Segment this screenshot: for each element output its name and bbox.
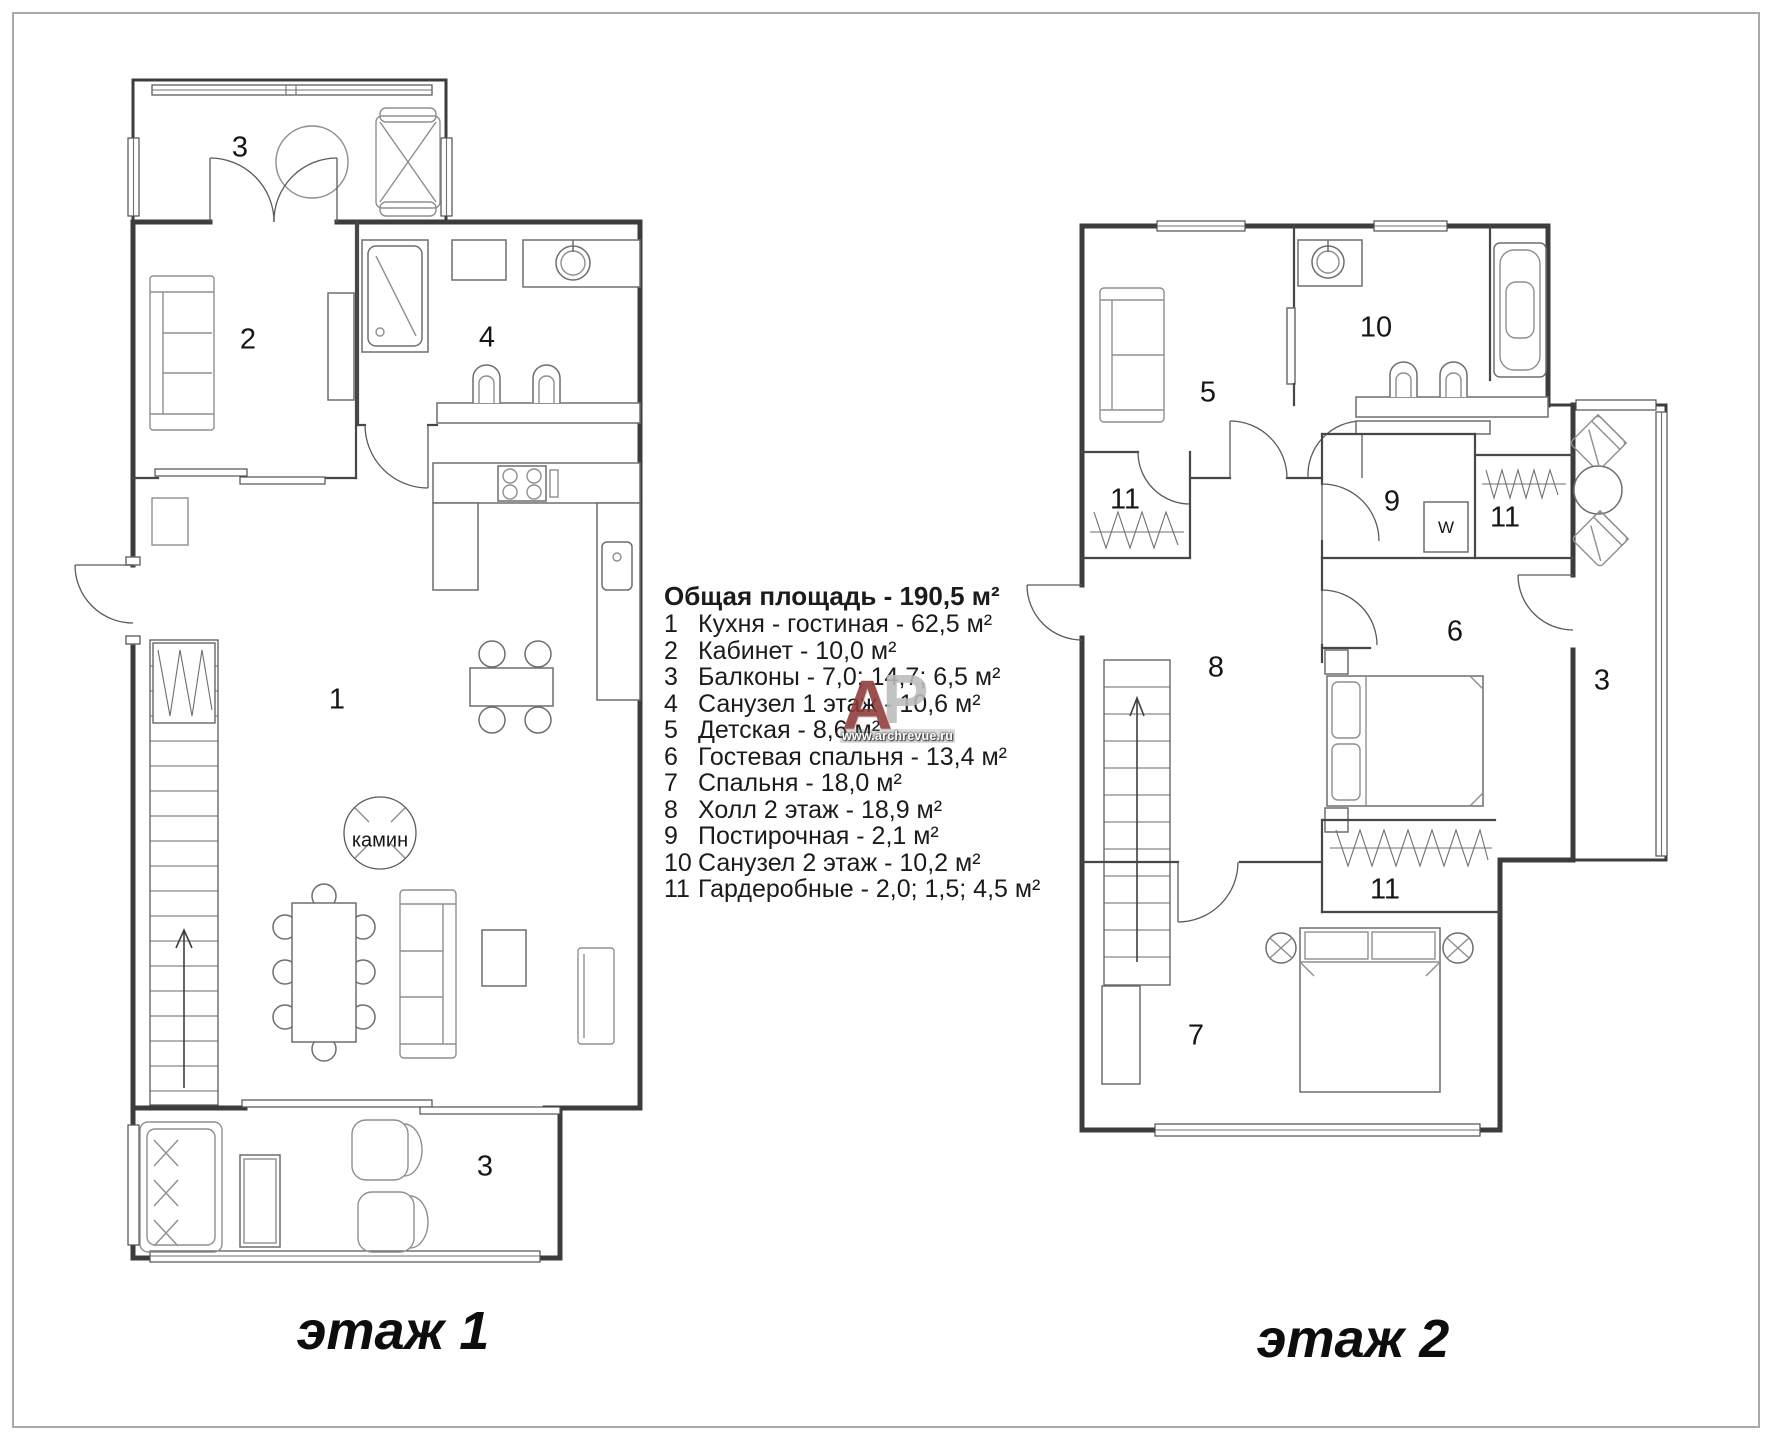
washbasin: [1298, 240, 1362, 286]
balcony-round-table: [1574, 466, 1622, 514]
stairs-floor1: [150, 640, 218, 1105]
living-sofas: [400, 890, 614, 1058]
bathroom1: [358, 222, 640, 488]
legend-item: 11Гардеробные - 2,0; 1,5; 4,5 м²: [664, 876, 1024, 903]
balcony-door: [1518, 575, 1573, 630]
office-room: [133, 222, 356, 545]
understairs-wardrobe: [153, 643, 215, 723]
room-label-hall: 8: [1208, 652, 1224, 685]
balcony-table: [240, 1155, 280, 1247]
pocket-door: [1287, 308, 1295, 384]
legend-item: 8Холл 2 этаж - 18,9 м²: [664, 797, 1024, 824]
room-label-bedroom: 7: [1188, 1020, 1204, 1053]
kids-sofa: [1100, 288, 1164, 422]
floor1-balcony-furniture: [276, 108, 440, 216]
sliding-door-panel: [240, 477, 325, 484]
room-label-bathroom2: 10: [1360, 312, 1392, 345]
toilet: [533, 365, 560, 403]
floor2-caption: этаж 2: [1257, 1308, 1450, 1370]
kitchen-sink: [602, 542, 632, 590]
balcony-chair: [1572, 511, 1629, 568]
ceiling-lamp: [1266, 933, 1296, 963]
guest-bed: [1327, 676, 1483, 806]
room-label-wardrobe-right: 11: [1490, 502, 1520, 535]
ceiling-lamp: [1443, 933, 1473, 963]
nightstand: [1325, 650, 1348, 674]
shower-cabin: [362, 240, 428, 352]
dining-table: [292, 903, 356, 1042]
washbasin-counter: [523, 240, 640, 287]
legend-item: 2Кабинет - 10,0 м²: [664, 638, 1024, 665]
room-label-office: 2: [240, 324, 256, 357]
bathtub: [1494, 243, 1546, 377]
room-label-laundry: 9: [1384, 486, 1400, 519]
office-sofa: [150, 276, 214, 430]
sliding-door-panel: [420, 1107, 560, 1114]
toilet-counter: [437, 403, 640, 423]
dining-set: [273, 884, 375, 1061]
toilet-counter: [1356, 397, 1548, 417]
breakfast-table: [470, 641, 553, 733]
floorplan-page: { "legend": { "title": "Общая площадь - …: [0, 0, 1772, 1440]
room-label-balcony-right: 3: [1594, 665, 1610, 698]
dresser: [1102, 986, 1140, 1084]
watermark-url: www.archrevue.ru: [840, 729, 955, 743]
sofa: [400, 890, 456, 1058]
room-label-wardrobe-left: 11: [1110, 484, 1140, 517]
legend-item: 7Спальня - 18,0 м²: [664, 770, 1024, 797]
coffee-table: [482, 930, 526, 986]
legend-item: 10Санузел 2 этаж - 10,2 м²: [664, 850, 1024, 877]
room-label-kids: 5: [1200, 377, 1216, 410]
fireplace-label: камин: [352, 830, 408, 853]
kitchen: [433, 463, 640, 733]
bath-cabinet: [452, 240, 506, 280]
legend-item: 9Постирочная - 2,1 м²: [664, 823, 1024, 850]
guest-bedroom: [1322, 558, 1483, 832]
room-label-guest-bedroom: 6: [1447, 616, 1463, 649]
floor1-plan: [75, 80, 640, 1262]
floor1-caption: этаж 1: [297, 1300, 490, 1362]
legend-item: 1Кухня - гостиная - 62,5 м²: [664, 611, 1024, 638]
bidet: [1390, 362, 1417, 397]
room-label-balcony-bottom: 3: [477, 1151, 493, 1184]
toilet: [1440, 362, 1467, 397]
closet: [1322, 820, 1500, 912]
room-label-bathroom1: 4: [479, 322, 495, 355]
armchair: [358, 1192, 428, 1252]
floor1-bottom-balcony: [128, 1100, 560, 1262]
room-label-living: 1: [329, 684, 345, 717]
legend-title: Общая площадь - 190,5 м²: [664, 582, 1024, 610]
lounge-chaise: [140, 1122, 222, 1252]
floor2-exterior-door: [1027, 585, 1082, 640]
floor1-top-balcony-walls: [128, 80, 452, 222]
console-table: [152, 498, 188, 545]
entrance-door: [75, 557, 140, 644]
main-bed: [1300, 928, 1440, 1092]
floor2-plan: [1027, 221, 1667, 1136]
bidet: [473, 365, 500, 403]
washing-machine-label: W: [1438, 518, 1454, 538]
sliding-door-panel: [155, 469, 247, 476]
floor1-french-doors: [133, 158, 640, 222]
daybed: [376, 108, 440, 216]
sliding-door-panel: [242, 1100, 432, 1107]
balcony-chair: [1570, 415, 1627, 472]
stairs-floor2: [1104, 660, 1170, 985]
bathroom2: [1298, 226, 1548, 434]
armchair: [352, 1120, 422, 1180]
floor2-balcony: [1518, 400, 1667, 860]
wardrobe-right: [1475, 455, 1573, 498]
room-label-closet: 11: [1370, 874, 1400, 907]
office-cabinet: [328, 293, 354, 400]
room-label-balcony-top: 3: [232, 132, 248, 165]
